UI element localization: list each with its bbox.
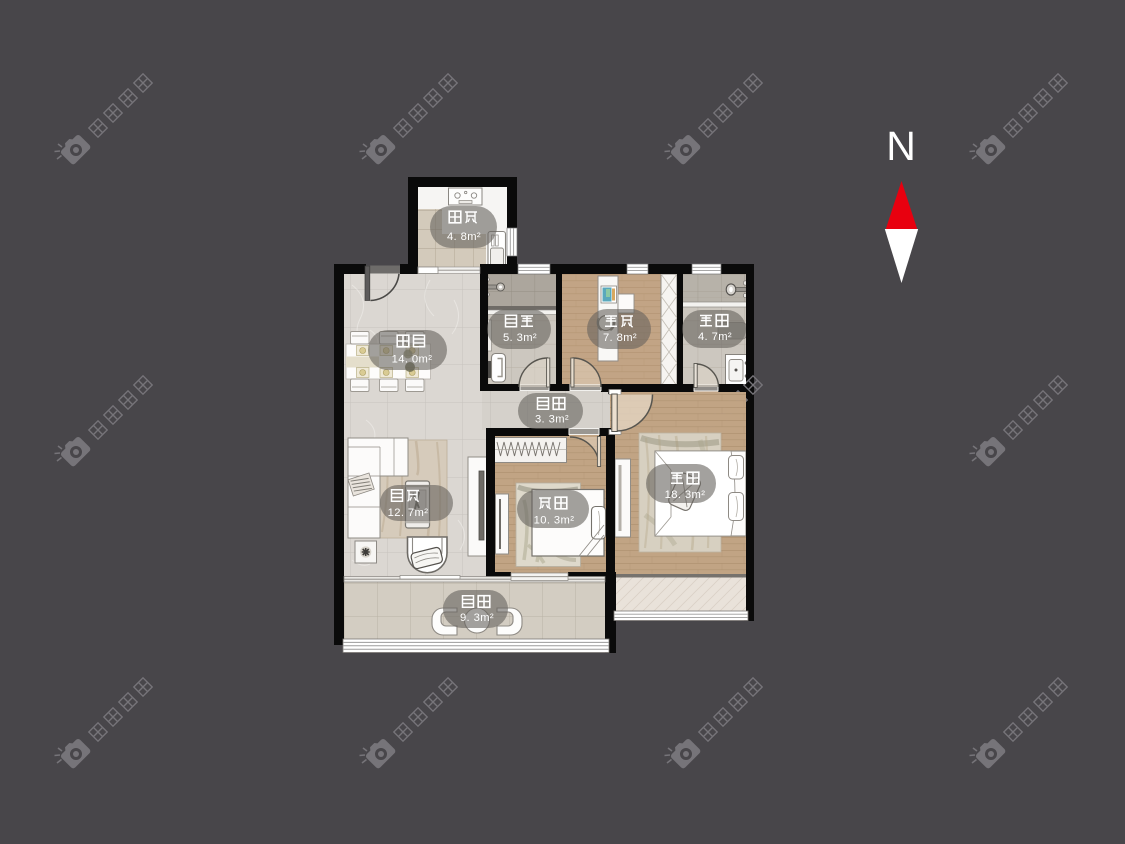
svg-text:N: N	[886, 123, 916, 169]
svg-text:4. 7m²: 4. 7m²	[698, 331, 732, 343]
svg-text:12. 7m²: 12. 7m²	[388, 507, 429, 519]
svg-text:18. 3m²: 18. 3m²	[665, 489, 706, 501]
svg-text:9. 3m²: 9. 3m²	[460, 612, 494, 624]
svg-text:14. 0m²: 14. 0m²	[392, 354, 433, 366]
svg-text:7. 8m²: 7. 8m²	[603, 332, 637, 344]
svg-text:10. 3m²: 10. 3m²	[534, 515, 575, 527]
svg-text:3. 3m²: 3. 3m²	[535, 414, 569, 426]
svg-text:5. 3m²: 5. 3m²	[503, 332, 537, 344]
svg-text:4. 8m²: 4. 8m²	[447, 231, 481, 243]
